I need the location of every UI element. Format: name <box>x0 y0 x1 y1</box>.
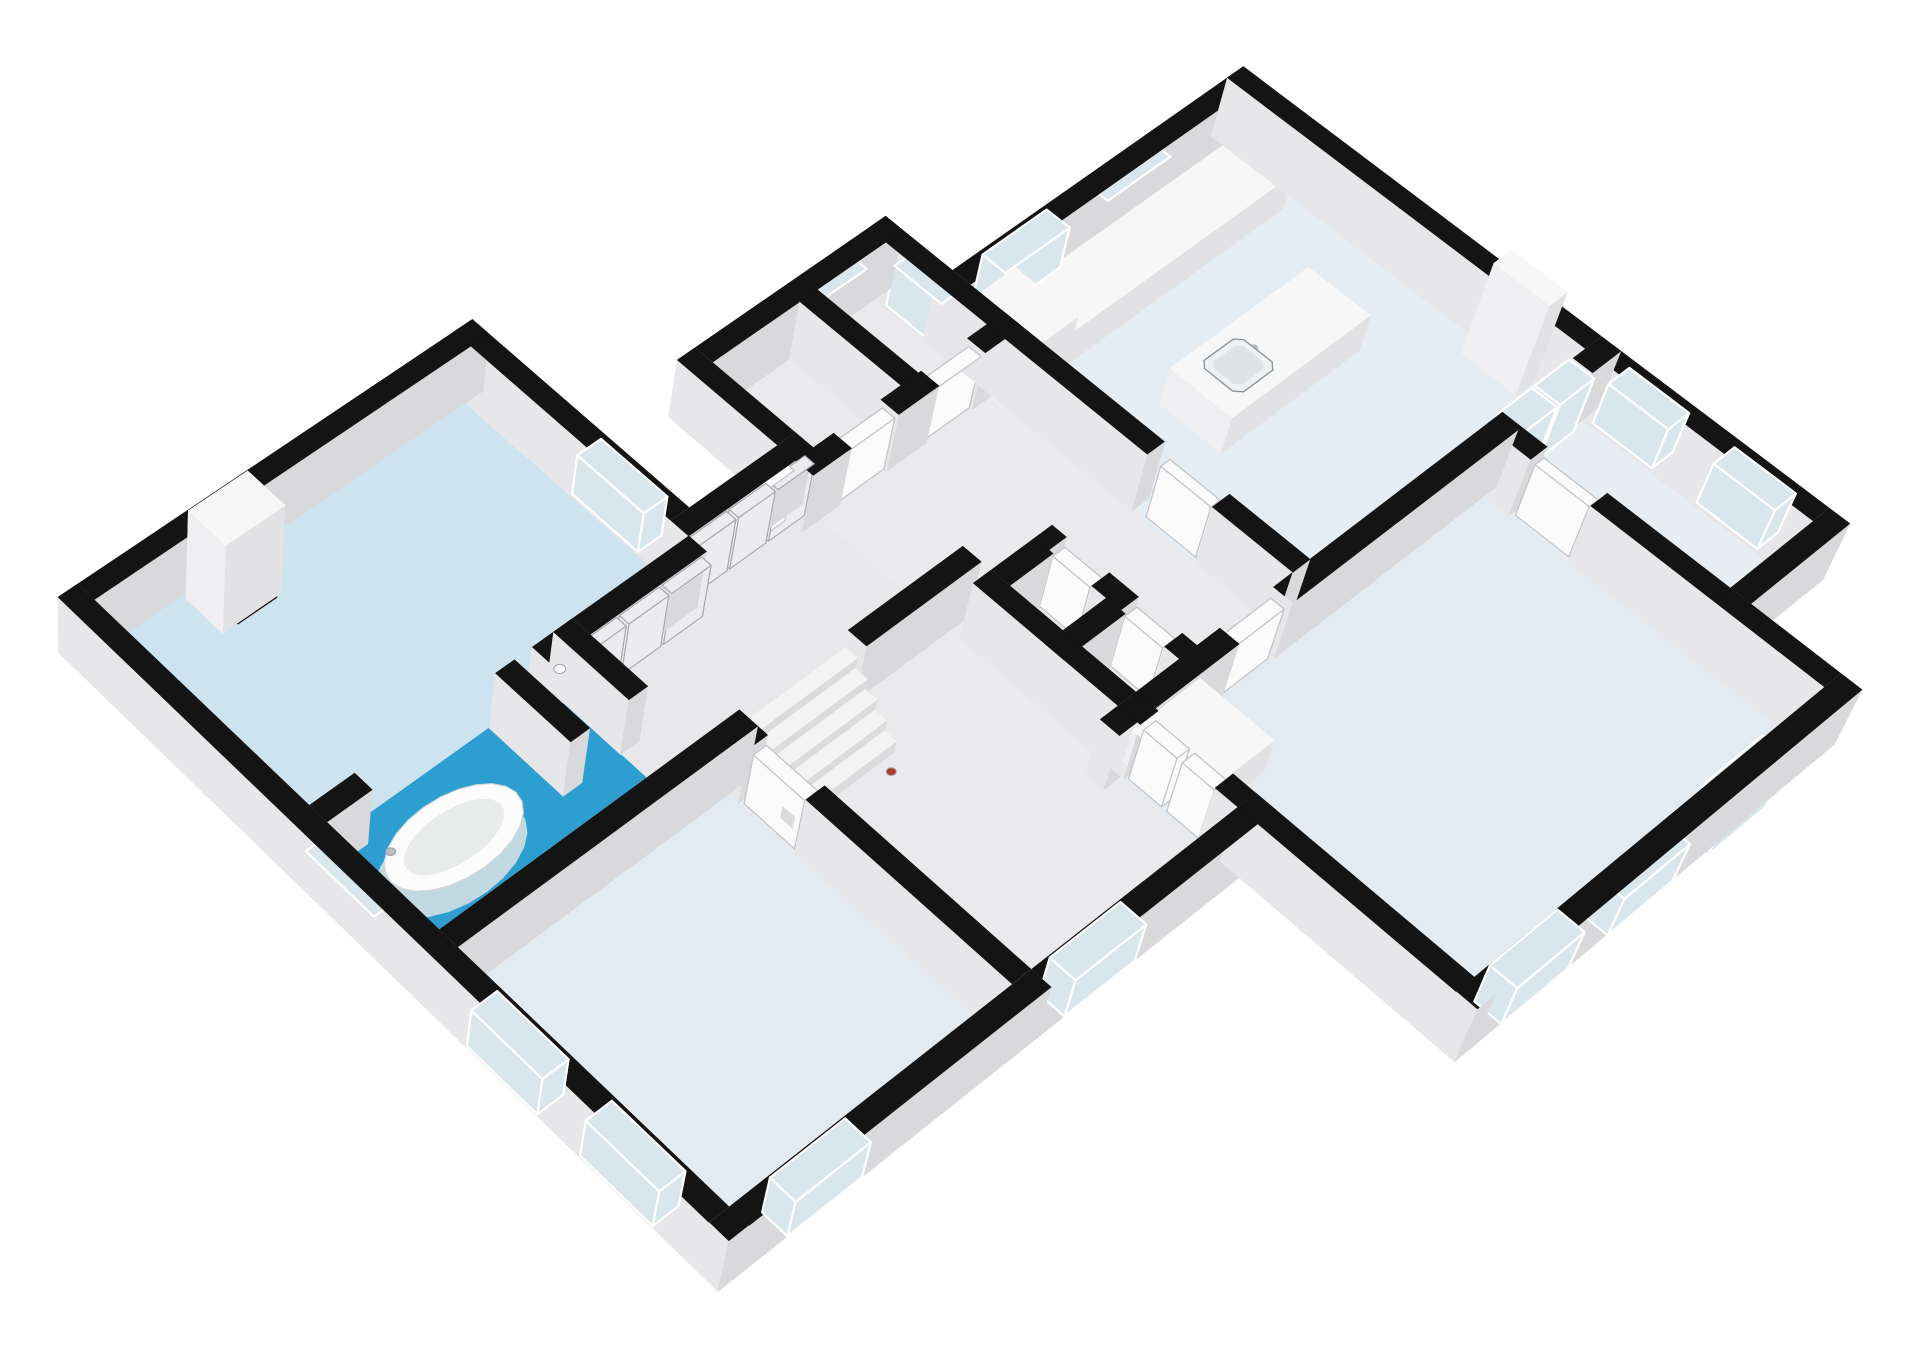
shower-head <box>554 664 566 673</box>
floorplan-svg <box>0 0 1920 1358</box>
floorplan-geometry <box>58 67 1862 1292</box>
decor-item <box>886 768 896 776</box>
tub-faucet <box>386 848 396 856</box>
floorplan-3d-render <box>0 0 1920 1358</box>
